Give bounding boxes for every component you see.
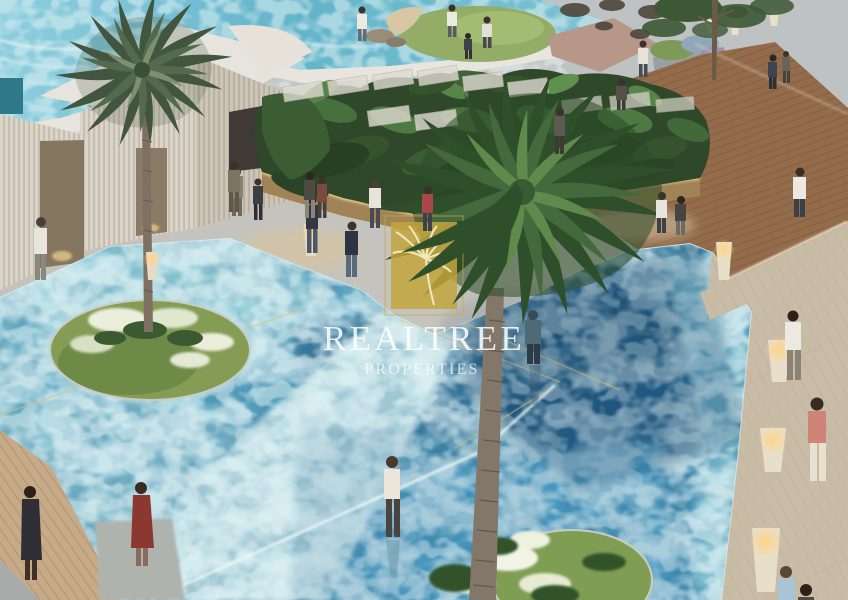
svg-text:REALTREE: REALTREE: [323, 319, 525, 358]
svg-text:PROPERTIES: PROPERTIES: [364, 361, 479, 378]
